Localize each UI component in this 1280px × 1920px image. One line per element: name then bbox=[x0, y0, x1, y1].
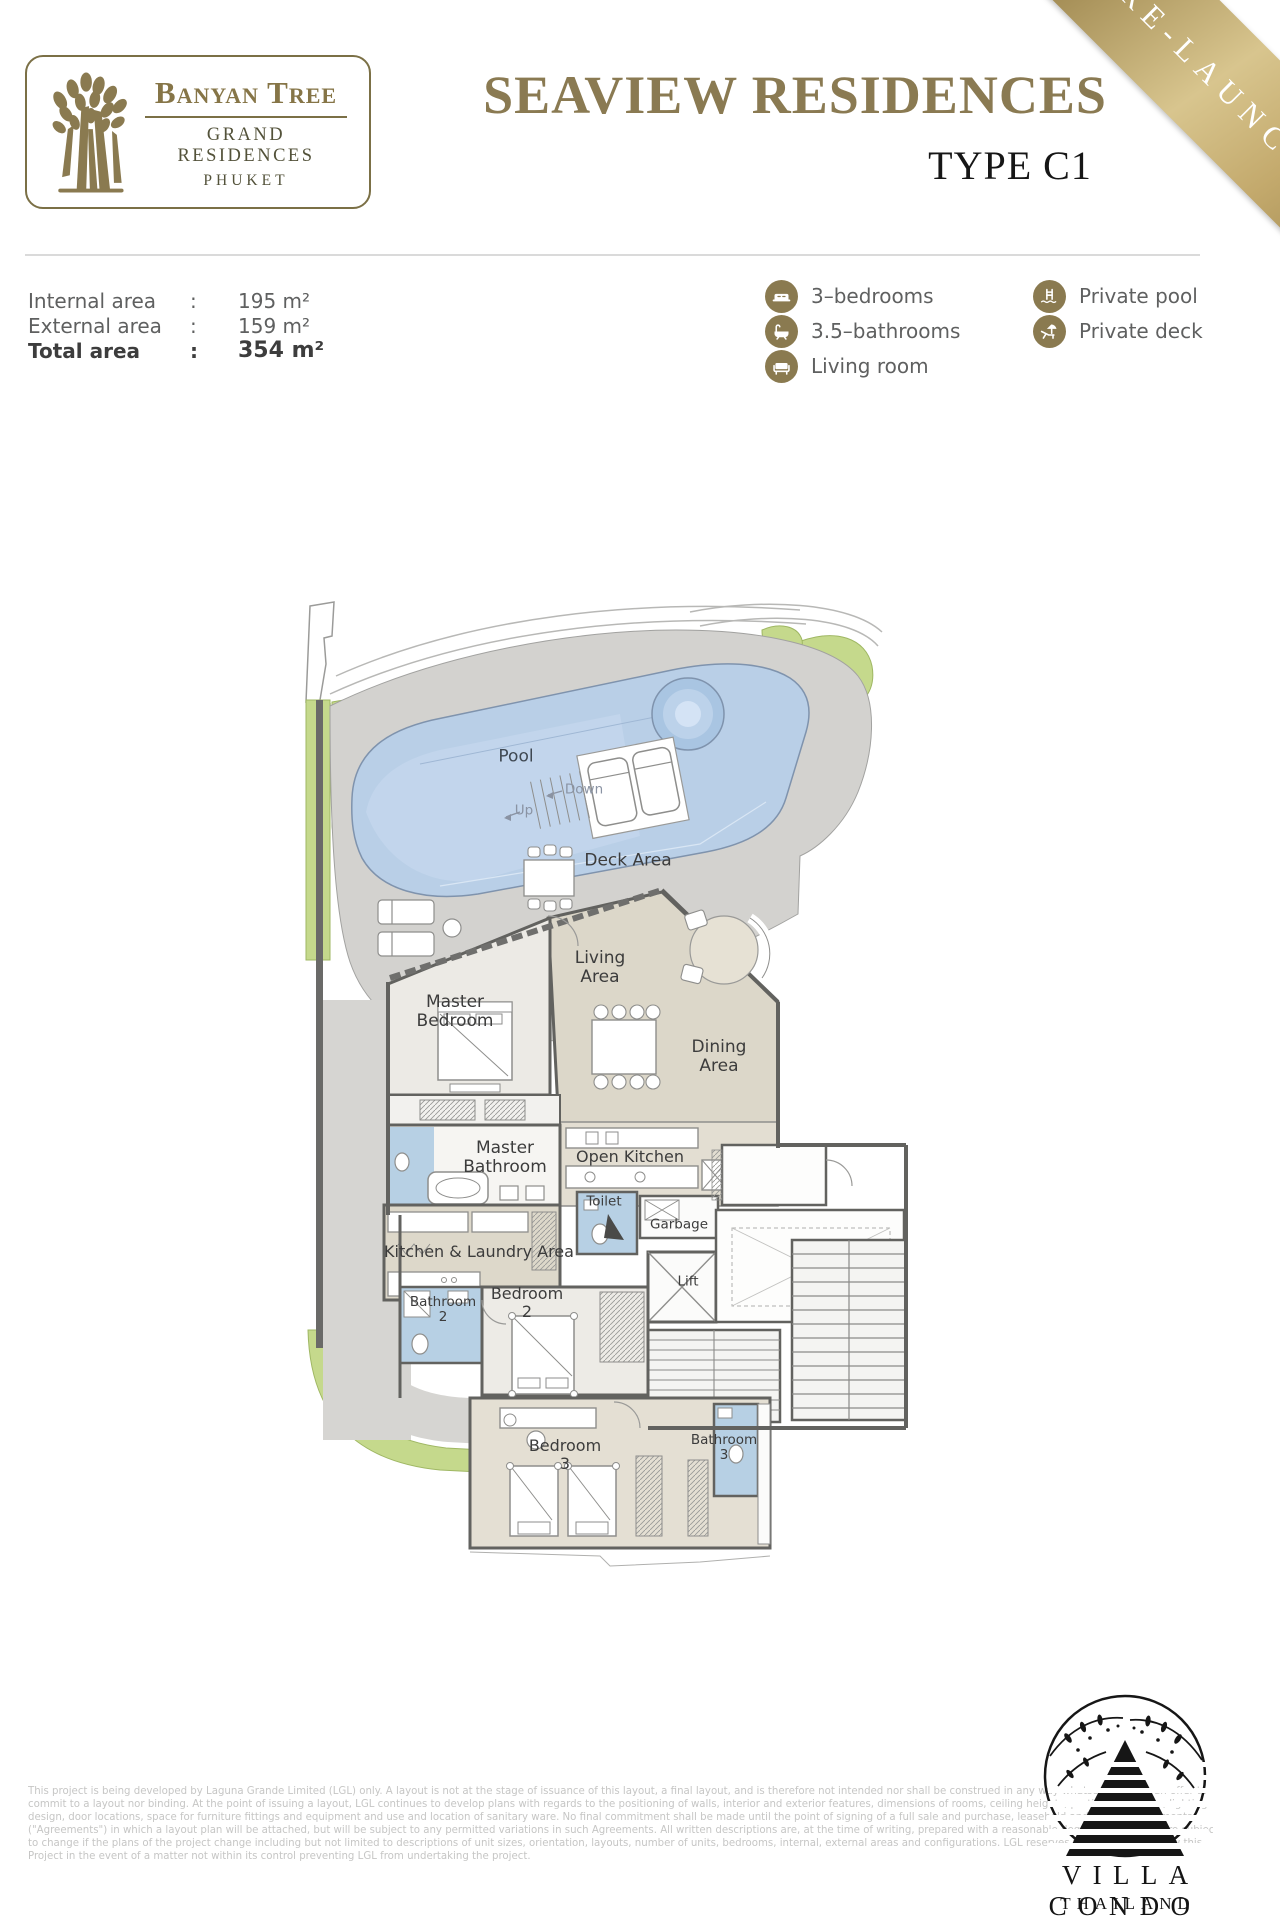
room-label-garbage: Garbage bbox=[650, 1217, 708, 1232]
total-area-row: Total area : 354 m² bbox=[28, 338, 328, 363]
bed-icon bbox=[765, 280, 798, 313]
sofa-icon bbox=[765, 350, 798, 383]
total-area-label: Total area bbox=[28, 339, 190, 363]
room-label-bathroom-3: Bathroom 3 bbox=[691, 1433, 757, 1463]
internal-area-value: 195 m² bbox=[238, 289, 328, 313]
area-summary: Internal area : 195 m² External area : 1… bbox=[28, 288, 328, 363]
room-label-master-bedroom: Master Bedroom bbox=[417, 993, 494, 1031]
room-label-open-kitchen: Open Kitchen bbox=[576, 1148, 684, 1166]
feature-private-pool: Private pool bbox=[1033, 283, 1203, 309]
external-area-label: External area bbox=[28, 314, 190, 338]
room-label-bedroom-2: Bedroom 2 bbox=[491, 1285, 563, 1321]
logo-line3: PHUKET bbox=[137, 172, 355, 190]
features-column-1: 3–bedrooms 3.5–bathrooms bbox=[765, 283, 960, 379]
floor-plan-drawing bbox=[280, 520, 960, 1640]
room-label-up: Up bbox=[515, 803, 533, 818]
unit-type-subtitle: TYPE C1 bbox=[860, 142, 1160, 189]
external-area-row: External area : 159 m² bbox=[28, 313, 328, 338]
brochure-page: Banyan Tree GRAND RESIDENCES PHUKET SEAV… bbox=[0, 0, 1280, 1920]
room-label-kitchen-laundry: Kitchen & Laundry Area bbox=[384, 1243, 574, 1261]
room-label-deck-area: Deck Area bbox=[584, 851, 671, 870]
page-title: SEAVIEW RESIDENCES bbox=[445, 64, 1145, 126]
feature-label: 3.5–bathrooms bbox=[811, 319, 960, 343]
bathtub-icon bbox=[765, 315, 798, 348]
villa-condo-logo-icon bbox=[1028, 1693, 1223, 1865]
banyan-tree-logo: Banyan Tree GRAND RESIDENCES PHUKET bbox=[25, 55, 371, 209]
feature-label: 3–bedrooms bbox=[811, 284, 934, 308]
room-label-bedroom-3: Bedroom 3 bbox=[529, 1437, 601, 1473]
feature-living-room: Living room bbox=[765, 353, 960, 379]
feature-label: Living room bbox=[811, 354, 929, 378]
internal-area-row: Internal area : 195 m² bbox=[28, 288, 328, 313]
banyan-tree-icon bbox=[41, 68, 137, 196]
feature-bathrooms: 3.5–bathrooms bbox=[765, 318, 960, 344]
room-label-lift: Lift bbox=[677, 1274, 698, 1289]
logo-line2: GRAND RESIDENCES bbox=[137, 125, 355, 167]
separator: : bbox=[190, 339, 238, 363]
features-column-2: Private pool Private deck bbox=[1033, 283, 1203, 344]
room-label-down: Down bbox=[565, 782, 603, 797]
room-label-bathroom-2: Bathroom 2 bbox=[410, 1295, 476, 1325]
room-label-living-area: Living Area bbox=[575, 949, 626, 987]
feature-label: Private deck bbox=[1079, 319, 1203, 343]
internal-area-label: Internal area bbox=[28, 289, 190, 313]
room-label-dining-area: Dining Area bbox=[692, 1038, 747, 1076]
room-label-toilet: Toilet bbox=[586, 1194, 621, 1209]
deck-chair-icon bbox=[1033, 315, 1066, 348]
room-label-pool: Pool bbox=[498, 747, 533, 766]
feature-private-deck: Private deck bbox=[1033, 318, 1203, 344]
feature-label: Private pool bbox=[1079, 284, 1198, 308]
villa-condo-country: THAILAND bbox=[980, 1894, 1270, 1914]
external-area-value: 159 m² bbox=[238, 314, 328, 338]
total-area-value: 354 m² bbox=[238, 338, 328, 363]
separator: : bbox=[190, 289, 238, 313]
pool-ladder-icon bbox=[1033, 280, 1066, 313]
header-divider bbox=[25, 254, 1200, 256]
separator: : bbox=[190, 314, 238, 338]
logo-rule bbox=[145, 116, 347, 118]
logo-brand-text: Banyan Tree bbox=[137, 75, 355, 111]
room-label-master-bathroom: Master Bathroom bbox=[463, 1139, 547, 1177]
feature-bedrooms: 3–bedrooms bbox=[765, 283, 960, 309]
